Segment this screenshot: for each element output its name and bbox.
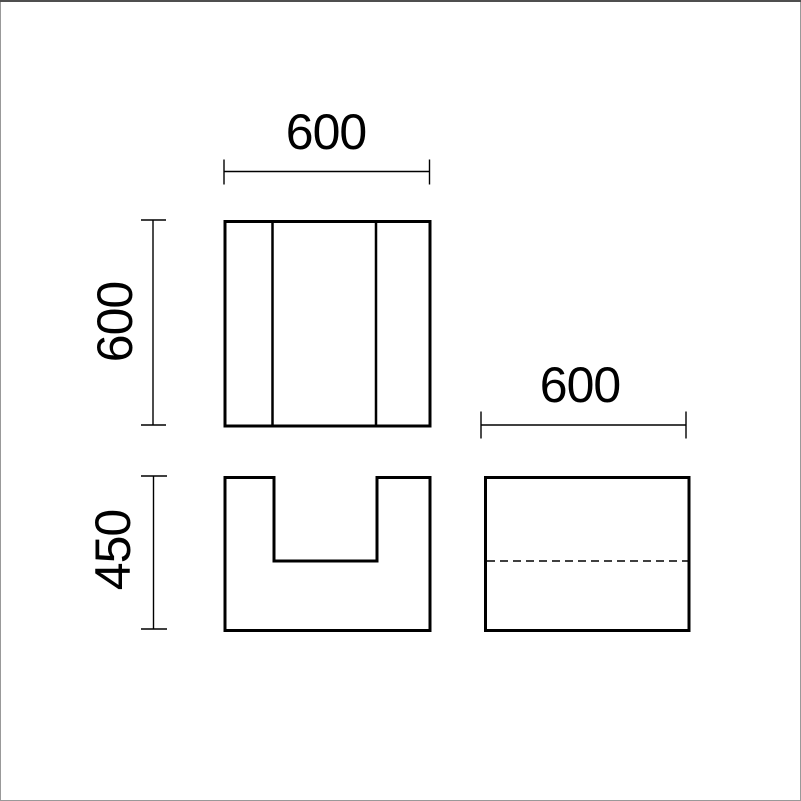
plan-depth-label: 600 bbox=[87, 282, 143, 362]
plan-view-outline bbox=[225, 222, 430, 427]
side-width-label: 600 bbox=[540, 357, 620, 413]
drawing-page: 600 600 450 600 bbox=[0, 0, 801, 801]
dimension-labels: 600 600 450 600 bbox=[85, 104, 620, 590]
side-view bbox=[486, 478, 690, 631]
dimension-drawing: 600 600 450 600 bbox=[0, 0, 801, 801]
side-view-outline bbox=[486, 478, 690, 631]
dimension-plan-width bbox=[224, 160, 430, 185]
front-view-outline bbox=[225, 478, 430, 631]
plan-width-label: 600 bbox=[286, 104, 366, 160]
front-height-label: 450 bbox=[85, 510, 141, 590]
dimension-side-width bbox=[481, 412, 686, 439]
page-frame-border bbox=[1, 1, 801, 801]
dimension-front-height bbox=[141, 476, 167, 629]
plan-view bbox=[225, 222, 430, 427]
dimension-plan-depth bbox=[141, 220, 166, 425]
